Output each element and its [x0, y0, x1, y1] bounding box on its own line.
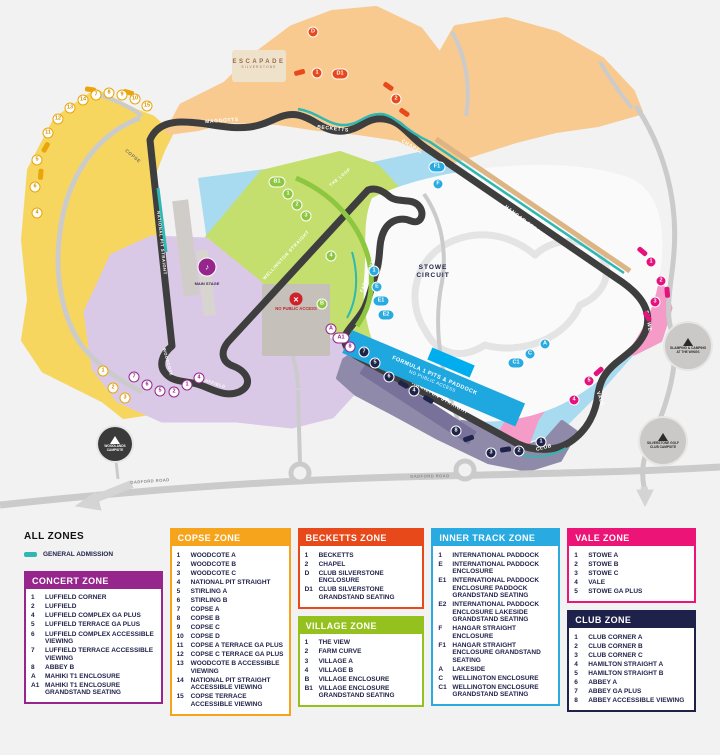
map-marker-vale-5: 5 — [584, 376, 595, 387]
map-marker-vale-1: 1 — [646, 257, 657, 268]
legend-item: 3CLUB CORNER C — [574, 652, 689, 659]
map-marker-vale-3: 3 — [650, 297, 661, 308]
legend-item: A1MAHIKI T1 ENCLOSURE GRANDSTAND SEATING — [31, 682, 156, 697]
escapade-label: ESCAPADE SILVERSTONE — [233, 59, 286, 69]
map-marker-village-2: 2 — [292, 200, 303, 211]
tent-icon — [683, 338, 693, 346]
legend-card-title: VILLAGE ZONE — [300, 618, 423, 634]
map-marker-concert-2: 2 — [169, 387, 180, 398]
legend-card-title: INNER TRACK ZONE — [433, 530, 558, 546]
legend-item: C1WELLINGTON ENCLOSURE GRANDSTAND SEATIN… — [438, 684, 553, 699]
map-marker-concert-1: 1 — [182, 380, 193, 391]
map-marker-copse-14: 14 — [78, 95, 89, 106]
map-marker-becketts-1: 1 — [312, 68, 323, 79]
map-marker-concert-A1: A1 — [333, 333, 350, 344]
legend-item: EINTERNATIONAL PADDOCK ENCLOSURE — [438, 561, 553, 576]
no-access-icon: × — [290, 293, 303, 306]
map-marker-village-1: 1 — [283, 189, 294, 200]
campsite-marker: SILVERSTONE GOLF CLUB CAMPSITE — [640, 418, 686, 464]
map-marker-inner-C1: C1 — [508, 358, 525, 369]
map-marker-copse-13: 13 — [65, 103, 76, 114]
no-access-label: NO PUBLIC ACCESS — [275, 307, 317, 312]
legend-item: B1VILLAGE ENCLOSURE GRANDSTAND SEATING — [305, 685, 418, 700]
legend: ALL ZONESGENERAL ADMISSIONCONCERT ZONE1L… — [0, 524, 720, 755]
map-marker-club-3: 3 — [486, 448, 497, 459]
legend-card-title: ALL ZONES — [24, 528, 163, 545]
legend-item: 7COPSE A — [177, 606, 284, 613]
legend-card-title: COPSE ZONE — [172, 530, 289, 546]
legend-item: 1INTERNATIONAL PADDOCK — [438, 552, 553, 559]
map-marker-becketts-D1: D1 — [332, 69, 349, 80]
campsite-marker: WOODLANDS CAMPSITE — [98, 427, 132, 461]
legend-item: 5HAMILTON STRAIGHT B — [574, 670, 689, 677]
map-marker-copse-3: 3 — [120, 393, 131, 404]
legend-item: DCLUB SILVERSTONE ENCLOSURE — [305, 570, 418, 585]
legend-item: AMAHIKI T1 ENCLOSURE — [31, 673, 156, 680]
legend-item: 1LUFFIELD CORNER — [31, 594, 156, 601]
campsite-label: SILVERSTONE GOLF CLUB CAMPSITE — [643, 442, 683, 449]
map-marker-inner-E1: E1 — [373, 296, 390, 307]
map-marker-concert-5: 5 — [155, 386, 166, 397]
legend-item: 6ABBEY A — [574, 679, 689, 686]
map-marker-becketts-D: D — [308, 27, 319, 38]
map-marker-copse-4: 4 — [32, 208, 43, 219]
legend-item: 3WOODCOTE C — [177, 570, 284, 577]
legend-card-copse: COPSE ZONE1WOODCOTE A2WOODCOTE B3WOODCOT… — [170, 528, 291, 716]
grandstand-bar-copse — [37, 168, 42, 179]
legend-item: 6LUFFIELD COMPLEX ACCESSIBLE VIEWING — [31, 631, 156, 646]
legend-card-concert: CONCERT ZONE1LUFFIELD CORNER2LUFFIELD4LU… — [24, 571, 163, 705]
legend-item: 14NATIONAL PIT STRAIGHT ACCESSIBLE VIEWI… — [177, 677, 284, 692]
map-marker-club-7: 7 — [359, 347, 370, 358]
legend-item: 1THE VIEW — [305, 639, 418, 646]
legend-item: 7ABBEY GA PLUS — [574, 688, 689, 695]
map-marker-copse-6: 6 — [30, 182, 41, 193]
map-marker-copse-10: 10 — [130, 94, 141, 105]
legend-item: 2STOWE B — [574, 561, 689, 568]
campsite-marker: GLAMPING & CAMPING AT THE WINGS — [665, 323, 711, 369]
map-marker-inner-A: A — [540, 339, 551, 350]
map-marker-vale-2: 2 — [656, 276, 667, 287]
map-marker-club-8: 8 — [451, 426, 462, 437]
stowe-circuit-label: STOWE CIRCUIT — [416, 264, 449, 280]
legend-card-title: VALE ZONE — [569, 530, 694, 546]
legend-card-becketts: BECKETTS ZONE1BECKETTS2CHAPELDCLUB SILVE… — [298, 528, 425, 609]
legend-item: 1CLUB CORNER A — [574, 634, 689, 641]
legend-item: 5LUFFIELD TERRACE GA PLUS — [31, 621, 156, 628]
map-marker-copse-7: 7 — [91, 90, 102, 101]
map-marker-copse-12: 12 — [53, 114, 64, 125]
map-marker-copse-11: 11 — [43, 128, 54, 139]
legend-card-village: VILLAGE ZONE1THE VIEW2FARM CURVE3VILLAGE… — [298, 616, 425, 707]
legend-item: 1STOWE A — [574, 552, 689, 559]
legend-item: E1INTERNATIONAL PADDOCK ENCLOSURE PADDOC… — [438, 577, 553, 599]
map-marker-inner-E: E — [372, 282, 383, 293]
map-marker-copse-9: 9 — [117, 90, 128, 101]
legend-item: 4VILLAGE B — [305, 667, 418, 674]
map-marker-copse-5: 5 — [32, 155, 43, 166]
map-marker-inner-1: 1 — [369, 266, 380, 277]
legend-item: 3STOWE C — [574, 570, 689, 577]
map-marker-copse-15: 15 — [142, 101, 153, 112]
map-marker-inner-F: F — [433, 179, 444, 190]
legend-item: 6STIRLING B — [177, 597, 284, 604]
legend-item: 7LUFFIELD TERRACE ACCESSIBLE VIEWING — [31, 647, 156, 662]
track-label: DADFORD ROAD — [410, 473, 449, 479]
map-marker-copse-8: 8 — [104, 88, 115, 99]
legend-item: BVILLAGE ENCLOSURE — [305, 676, 418, 683]
circuit-map: FORMULA 1 PITS & PADDOCK NO PUBLIC ACCES… — [0, 0, 720, 524]
legend-item: 3VILLAGE A — [305, 658, 418, 665]
legend-item: 1WOODCOTE A — [177, 552, 284, 559]
map-marker-club-5: 5 — [370, 358, 381, 369]
map-marker-club-2: 2 — [514, 446, 525, 457]
map-marker-copse-2: 2 — [108, 383, 119, 394]
legend-item: 4VALE — [574, 579, 689, 586]
legend-card-all: ALL ZONESGENERAL ADMISSION — [24, 528, 163, 564]
legend-item: 12COPSE C TERRACE GA PLUS — [177, 651, 284, 658]
map-marker-vale-4: 4 — [569, 395, 580, 406]
legend-item: 2CLUB CORNER B — [574, 643, 689, 650]
legend-item: CWELLINGTON ENCLOSURE — [438, 675, 553, 682]
map-marker-inner-F1: F1 — [429, 162, 446, 173]
map-marker-concert-6: 6 — [142, 380, 153, 391]
legend-item: 15COPSE TERRACE ACCESSIBLE VIEWING — [177, 693, 284, 708]
map-marker-village-B: B — [317, 299, 328, 310]
roundabout — [456, 461, 474, 479]
map-marker-club-1: 1 — [536, 437, 547, 448]
legend-item: FHANGAR STRAIGHT ENCLOSURE — [438, 625, 553, 640]
legend-card-title: CONCERT ZONE — [26, 573, 161, 589]
campsite-label: GLAMPING & CAMPING AT THE WINGS — [668, 347, 708, 354]
map-marker-concert-8: 8 — [345, 342, 356, 353]
general-admission-key: GENERAL ADMISSION — [24, 551, 158, 558]
roundabout — [291, 464, 309, 482]
general-admission-swatch — [24, 552, 37, 557]
legend-card-vale: VALE ZONE1STOWE A2STOWE B3STOWE C4VALE5S… — [567, 528, 696, 603]
legend-item: 5STOWE GA PLUS — [574, 588, 689, 595]
map-marker-copse-1: 1 — [98, 366, 109, 377]
legend-card-title: BECKETTS ZONE — [300, 530, 423, 546]
map-marker-village-4: 4 — [326, 251, 337, 262]
map-marker-inner-C: C — [525, 349, 536, 360]
legend-card-inner: INNER TRACK ZONE1INTERNATIONAL PADDOCKEI… — [431, 528, 560, 706]
map-marker-inner-E2: E2 — [378, 310, 395, 321]
main-stage-icon: ♪ — [198, 258, 217, 277]
map-marker-concert-7: 7 — [129, 372, 140, 383]
legend-item: 4HAMILTON STRAIGHT A — [574, 661, 689, 668]
legend-item: 9COPSE C — [177, 624, 284, 631]
legend-item: 11COPSE A TERRACE GA PLUS — [177, 642, 284, 649]
map-marker-concert-4: 4 — [194, 373, 205, 384]
legend-card-club: CLUB ZONE1CLUB CORNER A2CLUB CORNER B3CL… — [567, 610, 696, 712]
legend-item: 8ABBEY B — [31, 664, 156, 671]
map-marker-village-B1: B1 — [269, 177, 286, 188]
map-marker-club-6: 6 — [384, 372, 395, 383]
main-stage-label: MAIN STAGE — [195, 281, 220, 286]
tent-icon — [110, 436, 120, 444]
silverstone-circuit-map-page: FORMULA 1 PITS & PADDOCK NO PUBLIC ACCES… — [0, 0, 720, 755]
legend-item: 2WOODCOTE B — [177, 561, 284, 568]
legend-item: 8COPSE B — [177, 615, 284, 622]
legend-item: 2LUFFIELD — [31, 603, 156, 610]
legend-item: 2CHAPEL — [305, 561, 418, 568]
tent-icon — [658, 433, 668, 441]
legend-item: ALAKESIDE — [438, 666, 553, 673]
campsite-label: WOODLANDS CAMPSITE — [100, 445, 130, 452]
legend-item: 10COPSE D — [177, 633, 284, 640]
legend-item: D1CLUB SILVERSTONE GRANDSTAND SEATING — [305, 586, 418, 601]
legend-item: 13WOODCOTE B ACCESSIBLE VIEWING — [177, 660, 284, 675]
legend-item: E2INTERNATIONAL PADDOCK ENCLOSURE LAKESI… — [438, 601, 553, 623]
grandstand-bar-vale — [664, 286, 669, 297]
legend-item: 4LUFFIELD COMPLEX GA PLUS — [31, 612, 156, 619]
legend-item: 4NATIONAL PIT STRAIGHT — [177, 579, 284, 586]
legend-item: F1HANGAR STRAIGHT ENCLOSURE GRANDSTAND S… — [438, 642, 553, 664]
legend-item: 8ABBEY ACCESSIBLE VIEWING — [574, 697, 689, 704]
legend-item: 1BECKETTS — [305, 552, 418, 559]
map-marker-village-3: 3 — [301, 211, 312, 222]
legend-item: 2FARM CURVE — [305, 648, 418, 655]
map-marker-club-4: 4 — [409, 386, 420, 397]
legend-card-title: CLUB ZONE — [569, 612, 694, 628]
legend-item: 5STIRLING A — [177, 588, 284, 595]
map-marker-becketts-2: 2 — [391, 94, 402, 105]
